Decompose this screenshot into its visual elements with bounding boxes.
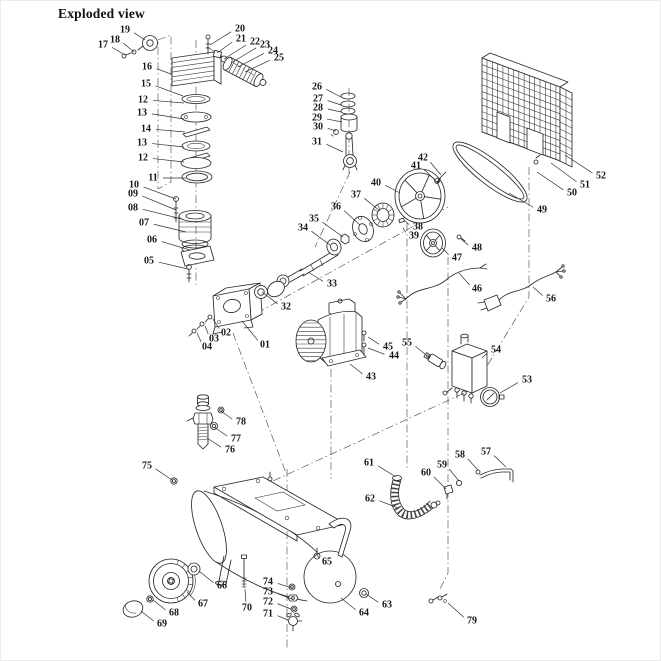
leader-line-26	[326, 89, 341, 97]
part-label-01: 01	[260, 340, 270, 351]
part-label-69: 69	[157, 619, 167, 630]
leader-line-56	[533, 287, 543, 296]
part-label-79: 79	[467, 616, 477, 627]
leader-line-07	[154, 224, 186, 232]
part-label-18: 18	[110, 35, 120, 46]
leader-line-18	[123, 43, 134, 52]
leader-line-43	[350, 364, 362, 374]
part-label-07: 07	[139, 218, 149, 229]
leader-line-35	[322, 222, 343, 237]
part-label-76: 76	[225, 445, 235, 456]
leader-line-76	[207, 438, 221, 447]
part-label-12: 12	[138, 153, 148, 164]
piston-rod-assembly	[331, 93, 357, 170]
leader-line-15	[156, 86, 183, 96]
part-label-66: 66	[217, 581, 227, 592]
part-label-13: 13	[137, 138, 147, 149]
leader-line-46	[459, 273, 470, 285]
leader-line-50	[537, 172, 563, 190]
pressure-gauge	[481, 388, 505, 407]
leader-line-12	[153, 159, 184, 162]
part-label-68: 68	[169, 608, 179, 619]
part-label-50: 50	[567, 188, 577, 199]
tank-fitting	[429, 594, 447, 603]
leader-line-63	[366, 594, 378, 602]
part-label-59: 59	[437, 460, 447, 471]
part-label-55: 55	[402, 338, 412, 349]
safety-valve	[171, 395, 224, 484]
flywheel	[395, 169, 446, 223]
leader-line-23	[231, 48, 256, 63]
leader-line-20	[210, 32, 231, 45]
part-label-11: 11	[148, 173, 157, 184]
part-label-49: 49	[537, 205, 547, 216]
motor	[295, 299, 366, 366]
leader-line-64	[341, 598, 356, 610]
part-label-51: 51	[580, 180, 590, 191]
part-label-46: 46	[472, 284, 482, 295]
leader-line-48	[461, 239, 468, 245]
part-label-52: 52	[596, 171, 606, 182]
leader-line-77	[214, 427, 227, 436]
part-label-21: 21	[236, 34, 246, 45]
part-label-09: 09	[128, 189, 138, 200]
part-label-35: 35	[309, 214, 319, 225]
part-label-33: 33	[327, 279, 337, 290]
part-label-74: 74	[263, 577, 273, 588]
leader-line-04	[197, 333, 201, 342]
part-label-58: 58	[455, 450, 465, 461]
part-label-71: 71	[263, 609, 273, 620]
leader-line-58	[468, 459, 478, 470]
part-label-34: 34	[298, 223, 308, 234]
leader-line-27	[328, 101, 341, 105]
leader-line-51	[551, 163, 577, 182]
leader-line-70	[245, 589, 246, 602]
leader-line-28	[328, 109, 341, 112]
part-label-36: 36	[331, 202, 341, 213]
leader-line-12	[153, 100, 184, 103]
part-label-62: 62	[365, 494, 375, 505]
part-label-04: 04	[202, 342, 212, 353]
leader-line-09	[142, 196, 176, 210]
belt-guard	[482, 53, 572, 167]
leader-line-69	[141, 611, 153, 621]
part-label-73: 73	[263, 587, 273, 598]
part-label-72: 72	[263, 597, 273, 608]
leader-line-16	[157, 69, 171, 74]
part-label-42: 42	[418, 153, 428, 164]
leader-line-78	[221, 411, 232, 419]
leader-line-05	[159, 262, 188, 269]
leader-line-79	[448, 603, 464, 617]
part-label-06: 06	[147, 235, 157, 246]
part-label-57: 57	[481, 447, 491, 458]
leader-line-55	[415, 346, 430, 358]
part-label-56: 56	[546, 294, 556, 305]
leader-line-44	[368, 348, 384, 354]
part-label-13: 13	[137, 108, 147, 119]
part-label-65: 65	[322, 557, 332, 568]
leader-line-72	[278, 604, 291, 609]
leader-line-19	[134, 33, 145, 40]
exploded-view-page: Exploded view	[0, 0, 661, 661]
leader-line-75	[156, 469, 172, 480]
part-label-19: 19	[120, 25, 130, 36]
leader-line-67	[187, 592, 195, 600]
leader-line-66	[199, 571, 214, 583]
leader-line-34	[311, 231, 330, 245]
part-label-45: 45	[383, 342, 393, 353]
part-label-61: 61	[364, 458, 374, 469]
leader-line-60	[434, 477, 446, 489]
leader-line-10	[143, 187, 176, 199]
part-label-08: 08	[128, 203, 138, 214]
wheel-assembly	[121, 559, 200, 620]
part-label-54: 54	[491, 345, 501, 356]
leader-line-57	[494, 456, 506, 467]
part-label-40: 40	[371, 178, 381, 189]
part-label-32: 32	[281, 302, 291, 313]
leader-line-53	[500, 383, 518, 393]
leader-line-61	[378, 466, 396, 477]
part-label-26: 26	[312, 82, 322, 93]
valve-plate-stack	[181, 95, 212, 184]
part-label-12: 12	[138, 95, 148, 106]
part-label-67: 67	[198, 599, 208, 610]
leader-line-45	[368, 337, 379, 344]
plate	[181, 158, 211, 169]
leader-line-13	[152, 144, 184, 147]
part-label-22: 22	[250, 37, 260, 48]
part-label-77: 77	[231, 434, 241, 445]
cylinder-assembly	[174, 197, 214, 282]
exploded-view-canvas: 1917181615121314131211100908070605202122…	[0, 0, 661, 661]
leader-line-14	[156, 129, 185, 132]
part-label-64: 64	[359, 608, 369, 619]
leader-line-31	[326, 144, 343, 152]
leader-line-03	[205, 326, 208, 334]
part-label-48: 48	[472, 243, 482, 254]
part-label-43: 43	[366, 372, 376, 383]
pressure-switch	[443, 334, 487, 403]
part-label-15: 15	[141, 79, 151, 90]
outlet-pipe	[444, 469, 513, 499]
part-label-70: 70	[242, 603, 252, 614]
part-label-30: 30	[313, 122, 323, 133]
part-label-25: 25	[274, 53, 284, 64]
part-label-31: 31	[312, 137, 322, 148]
unloader-valve	[423, 351, 447, 370]
leader-line-59	[449, 469, 459, 481]
leader-line-29	[327, 119, 342, 122]
leader-line-01	[242, 321, 258, 341]
leader-line-13	[152, 114, 184, 119]
leader-line-22	[224, 45, 246, 59]
flex-hose	[391, 476, 440, 519]
part-label-63: 63	[382, 600, 392, 611]
leader-line-25	[245, 60, 270, 72]
leader-line-21	[217, 42, 232, 53]
part-label-37: 37	[351, 190, 361, 201]
part-label-60: 60	[421, 468, 431, 479]
part-label-47: 47	[452, 253, 462, 264]
part-label-05: 05	[144, 256, 154, 267]
leader-line-33	[308, 272, 323, 281]
part-label-78: 78	[236, 417, 246, 428]
part-label-16: 16	[142, 62, 152, 73]
part-label-39: 39	[409, 231, 419, 242]
part-label-17: 17	[98, 40, 108, 51]
part-label-14: 14	[141, 124, 151, 135]
part-label-02: 02	[221, 328, 231, 339]
part-label-53: 53	[522, 375, 532, 386]
air-tank	[184, 472, 368, 603]
leader-line-17	[112, 47, 125, 55]
part-label-75: 75	[142, 461, 152, 472]
